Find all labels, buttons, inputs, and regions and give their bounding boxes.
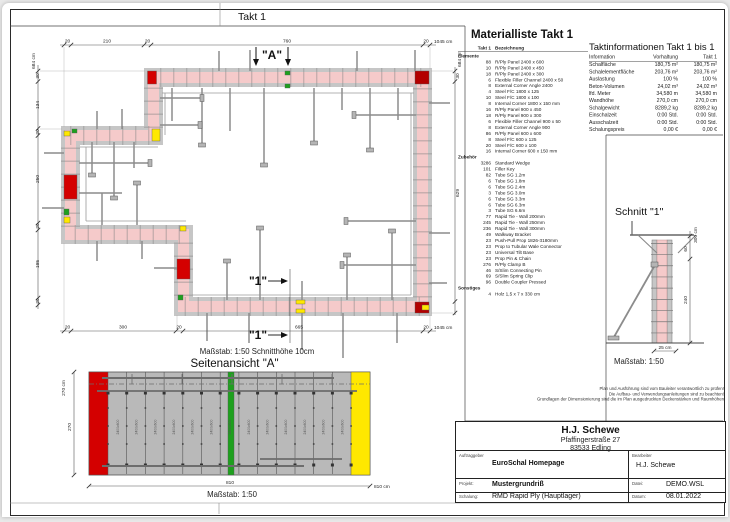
panel-size-label: 2400x600: [228, 419, 232, 434]
field-label-datei: Datei:: [632, 481, 643, 486]
dim-label: 1045 cm: [434, 325, 452, 331]
col-information: Information: [589, 54, 641, 62]
field-label-projekt: Projekt:: [459, 481, 474, 486]
dim-label: 20: [35, 223, 41, 229]
takt-info-cell: 0:00 Std.: [641, 119, 678, 126]
panel-size-label: 2400x600: [135, 419, 139, 434]
dim-label: 300 cm: [693, 227, 699, 243]
takt-info-cell: Schalgewicht: [589, 105, 641, 112]
panel-size-label: 2400x600: [116, 419, 120, 434]
dim-label: 210: [103, 39, 111, 45]
takt-info-cell: Ausschalzeit: [589, 119, 641, 126]
material-list: Takt 1 Bezeichnung Elemente88R/Ply Panel…: [458, 45, 588, 297]
material-row: 4Holz 1,5 x 7 x 330 cm: [458, 291, 588, 297]
disclaimer-line: Grundlagen der Dimensionierung sind die …: [464, 397, 724, 402]
dim-label: 760: [283, 39, 291, 45]
section-marker-a: "A": [253, 47, 291, 66]
field-value-auftraggeber: EuroSchal Homepage: [492, 460, 564, 467]
dim-label: 810: [226, 480, 234, 486]
side-view-title: Seitenansicht "A": [152, 358, 317, 370]
company-name: H.J. Schewe: [456, 425, 725, 436]
dim-label: 240: [683, 296, 689, 304]
col-takt1: Takt 1: [678, 54, 717, 62]
dim-label: 810 cm: [374, 484, 390, 490]
side-view-scale-note: Maßstab: 1:50: [172, 490, 292, 499]
dim-label: 1045 cm: [434, 39, 452, 45]
takt-info-cell: 8289,2 kg: [678, 105, 717, 112]
panel-size-label: 2400x600: [303, 419, 307, 434]
schnitt-title: Schnitt "1": [615, 206, 705, 218]
dim-label: 134: [35, 101, 41, 109]
dim-label: 20: [65, 39, 71, 45]
dim-label: 684 cm: [31, 53, 37, 69]
dim-label: 270: [67, 423, 73, 431]
side-view-drawing: 2400x6002400x6002400x6002400x6002400x600…: [61, 370, 390, 490]
material-list-header: Takt 1 Bezeichnung: [458, 45, 588, 52]
panel-size-label: 2400x600: [172, 419, 176, 434]
takt-info-cell: Auslastung: [589, 76, 641, 83]
takt-info-cell: 0:00 Std.: [641, 112, 678, 119]
panel-size-label: 2400x600: [209, 419, 213, 434]
disclaimer-text: Plan und Ausführung sind vom Bauleiter v…: [464, 386, 724, 402]
takt-info-cell: 180,75 m²: [678, 62, 717, 69]
dim-label: 20: [176, 325, 182, 331]
field-label-auftraggeber: Auftraggeber: [459, 453, 484, 458]
takt-info-cell: 180,75 m²: [641, 62, 678, 69]
takt-info-cell: Einschalzeit: [589, 112, 641, 119]
dim-label: 665: [295, 325, 303, 331]
col-vorhaltung: Vorhaltung: [641, 54, 678, 62]
dim-label: 25 cm: [658, 345, 671, 351]
takt-info-cell: 270,0 cm: [678, 98, 717, 105]
takt-info-cell: Schalfläche: [589, 62, 641, 69]
dim-label: 20: [145, 39, 151, 45]
takt-info-cell: Wandhöhe: [589, 98, 641, 105]
plan-drawing: 20 210 20 760 20 1045 cm 20 300 20 665 2…: [31, 39, 463, 359]
extension-lines: [40, 47, 453, 329]
takt-info-cell: 8289,2 kg: [641, 105, 678, 112]
materialliste-title: Materialliste Takt 1: [454, 29, 590, 41]
takt-info-cell: Schalelementfläche: [589, 69, 641, 76]
panel-size-label: 2400x600: [265, 419, 269, 434]
dim-label: 195: [35, 260, 41, 268]
dim-label: 20: [35, 129, 41, 135]
company-street: Pfaffingerstraße 27: [456, 437, 725, 444]
dim-label: 30: [35, 73, 41, 79]
takt-info-header: Information Vorhaltung Takt 1: [589, 54, 717, 62]
takt-info-cell: 24,02 m³: [678, 83, 717, 90]
takt-info-cell: 0,00 €: [678, 127, 717, 134]
takt-info-cell: 34,580 m: [678, 91, 717, 98]
panel-size-label: 2400x600: [322, 419, 326, 434]
title-block: H.J. Schewe Pfaffingerstraße 27 83533 Ed…: [455, 421, 726, 503]
schnitt-drawing: 300 cm 60 240 25 cm: [606, 221, 704, 353]
col-bezeichnung: Bezeichnung: [495, 45, 524, 51]
field-value-datum: 08.01.2022: [666, 493, 701, 500]
dim-label: 20: [35, 298, 41, 304]
takt-info-cell: 24,02 m³: [641, 83, 678, 90]
dim-label: 250: [35, 175, 41, 183]
field-label-datum: Datum:: [632, 494, 646, 499]
panel-size-label: 2400x600: [340, 419, 344, 434]
section-1-label: "1": [249, 328, 267, 342]
takt-info-cell: 203,76 m²: [641, 69, 678, 76]
plan-scale-note: Maßstab: 1:50 Schnitthöhe 10cm: [152, 347, 362, 356]
takt-info-cell: 100 %: [641, 76, 678, 83]
panel-size-label: 2400x600: [191, 419, 195, 434]
special-panels: [64, 71, 429, 313]
field-value-datei: DEMO.WSL: [666, 481, 704, 488]
field-value-schalung: RMD Rapid Ply (Hauptlager): [492, 493, 581, 500]
dim-label: 20: [65, 325, 71, 331]
takt-info-table: Information Vorhaltung Takt 1 Schalfläch…: [589, 54, 717, 134]
field-label-bearbeiter: Bearbeiter: [632, 453, 652, 458]
field-value-projekt: Mustergrundriß: [492, 481, 544, 488]
section-1-label: "1": [249, 274, 267, 288]
takt-info-cell: 203,76 m²: [678, 69, 717, 76]
panel-size-label: 2400x600: [153, 419, 157, 434]
dim-label: 20: [423, 39, 429, 45]
field-label-schalung: Schalung:: [459, 494, 478, 499]
section-a-label: "A": [262, 48, 282, 62]
drawing-sheet: 20 210 20 760 20 1045 cm 20 300 20 665 2…: [2, 3, 728, 517]
takt-info-cell: 0:00 Std.: [678, 119, 717, 126]
takt-info-cell: Schalungspreis: [589, 127, 641, 134]
panel-size-label: 2400x600: [247, 419, 251, 434]
panel-size-label: 2400x600: [284, 419, 288, 434]
dim-label: 300: [119, 325, 127, 331]
dim-label: 60: [683, 246, 689, 252]
takt-info-cell: 100 %: [678, 76, 717, 83]
col-takt: Takt 1: [458, 45, 491, 51]
takt-info-cell: 34,580 m: [641, 91, 678, 98]
schnitt-scale-note: Maßstab: 1:50: [614, 357, 694, 366]
takt-info-cell: 0,00 €: [641, 127, 678, 134]
taktinfo-title: Taktinformationen Takt 1 bis 1: [589, 42, 729, 53]
takt-info-cell: 270,0 cm: [641, 98, 678, 105]
dim-label: 20: [423, 325, 429, 331]
takt-info-cell: 0:00 Std.: [678, 112, 717, 119]
plan-title: Takt 1: [152, 11, 352, 23]
takt-info-cell: Beton-Volumen: [589, 83, 641, 90]
dim-label: 270 cm: [61, 380, 67, 396]
field-value-bearbeiter: H.J. Schewe: [636, 462, 675, 469]
takt-info-cell: lfd. Meter: [589, 91, 641, 98]
